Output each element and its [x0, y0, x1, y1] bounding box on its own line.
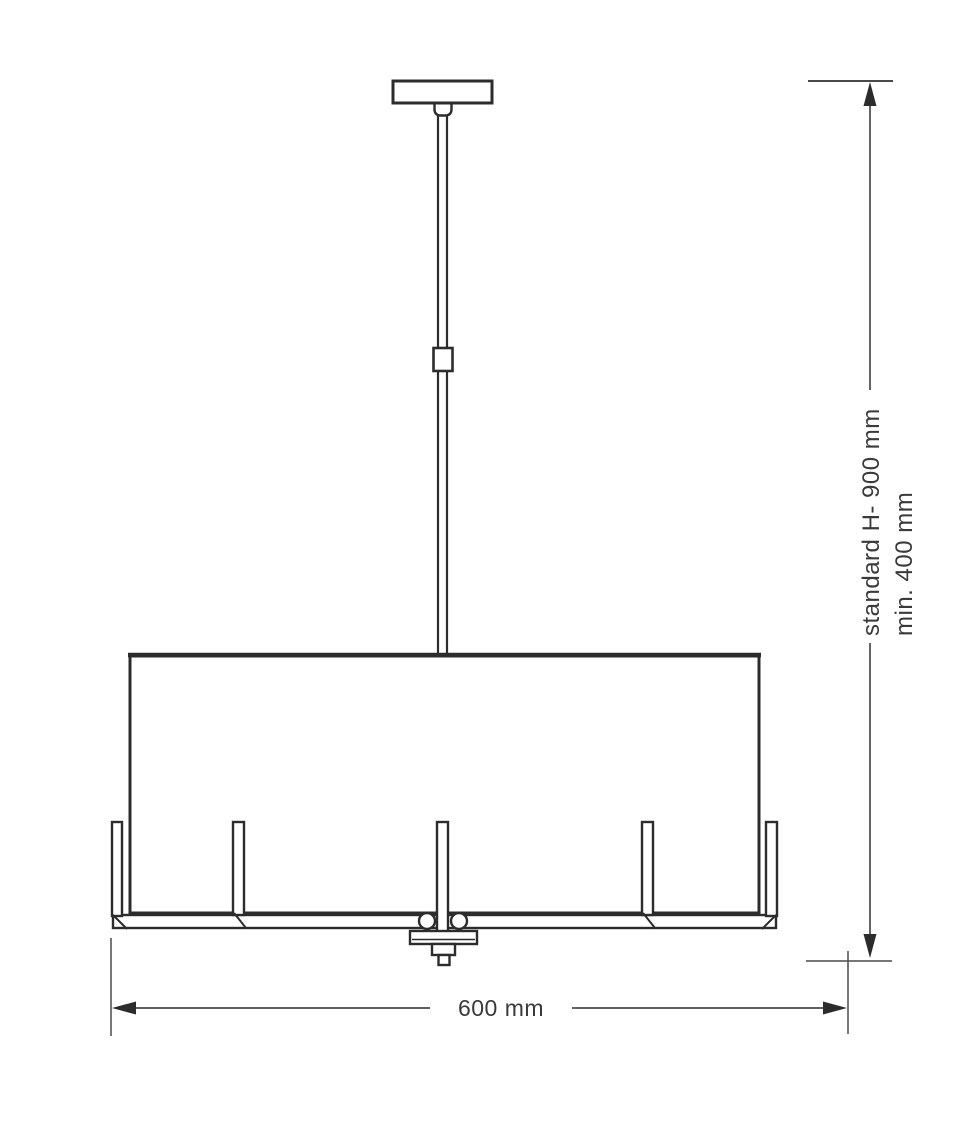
hub-plate — [410, 931, 477, 944]
horizontal-dim-arrow-left — [112, 1002, 136, 1015]
candle-post-center — [437, 822, 448, 934]
diagram-canvas: standard H- 900 mm min. 400 mm 600 mm — [0, 0, 969, 1121]
center-loop-right — [451, 913, 467, 929]
ceiling-canopy — [393, 81, 492, 103]
height-min-label: min. 400 mm — [891, 492, 918, 636]
suspension-rod — [434, 103, 453, 657]
width-label: 600 mm — [458, 995, 544, 1021]
vertical-dimension: standard H- 900 mm min. 400 mm — [806, 81, 918, 961]
finial-upper — [432, 944, 455, 955]
rod-connector — [434, 348, 453, 371]
vertical-dim-arrow-up — [864, 82, 877, 106]
frame-arm-left — [112, 822, 122, 916]
canopy-plate — [393, 81, 492, 103]
height-standard-label: standard H- 900 mm — [858, 408, 885, 636]
lamp-dimension-diagram: standard H- 900 mm min. 400 mm 600 mm — [0, 0, 969, 1121]
horizontal-dim-arrow-right — [823, 1002, 847, 1015]
vertical-dim-arrow-down — [864, 934, 877, 958]
canopy-neck — [435, 103, 452, 116]
finial-tip — [439, 955, 450, 965]
candle-post-right — [642, 822, 653, 915]
center-loop-left — [419, 913, 435, 929]
rod-shaft — [438, 112, 447, 657]
horizontal-dimension: 600 mm — [111, 938, 848, 1036]
frame-arm-right — [766, 822, 777, 916]
candle-post-left — [233, 822, 244, 915]
